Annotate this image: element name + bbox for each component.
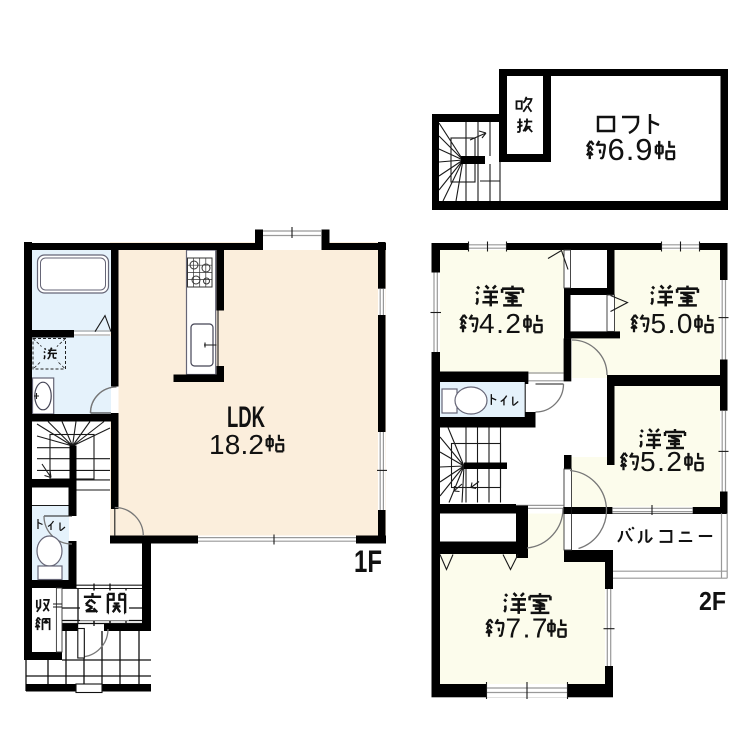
svg-text:18.2: 18.2 <box>209 429 264 460</box>
svg-text:4.2: 4.2 <box>479 308 521 339</box>
svg-text:7.7: 7.7 <box>506 613 548 644</box>
svg-text:2F: 2F <box>699 586 726 616</box>
svg-text:6.9: 6.9 <box>608 132 653 167</box>
svg-text:5.2: 5.2 <box>640 446 682 477</box>
svg-text:5.0: 5.0 <box>651 308 693 339</box>
svg-text:1F: 1F <box>354 543 382 579</box>
